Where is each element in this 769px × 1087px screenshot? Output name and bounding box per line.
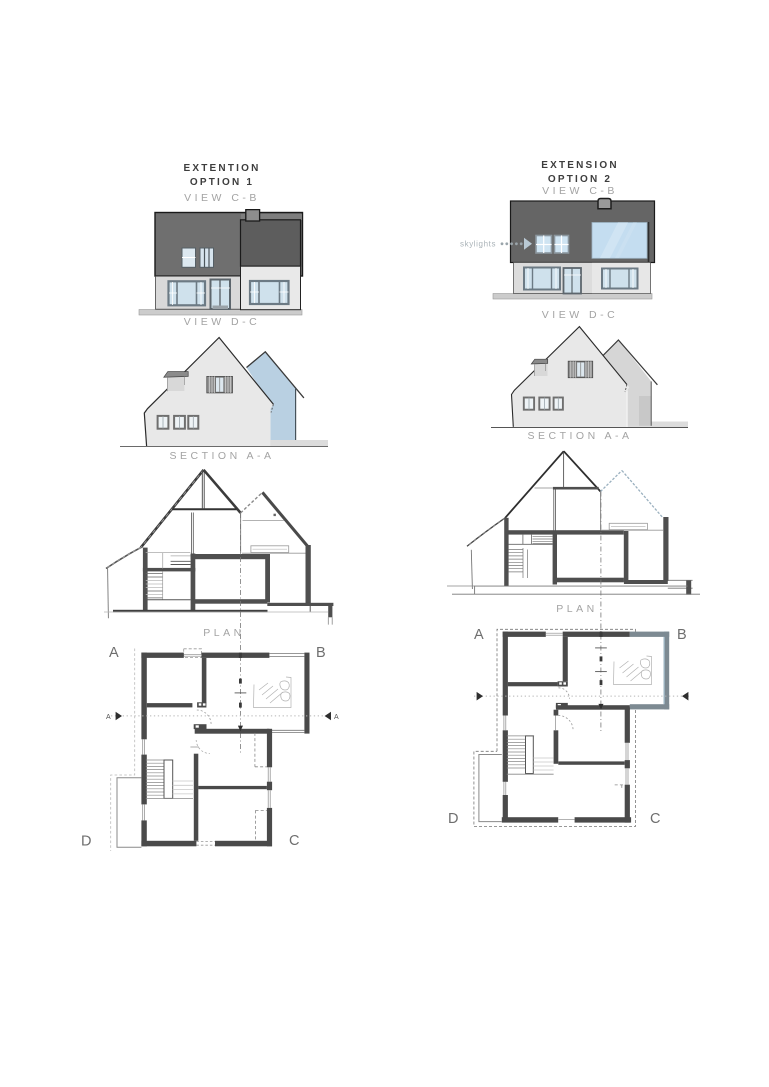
svg-text:B: B bbox=[677, 627, 687, 643]
svg-text:B: B bbox=[316, 645, 326, 661]
svg-text:A: A bbox=[474, 627, 484, 643]
svg-text:A: A bbox=[106, 714, 111, 721]
svg-text:D: D bbox=[81, 834, 91, 850]
svg-text:D: D bbox=[448, 811, 458, 827]
svg-text:C: C bbox=[650, 811, 660, 827]
svg-text:C: C bbox=[289, 833, 299, 849]
svg-text:A: A bbox=[334, 714, 339, 721]
svg-text:A: A bbox=[109, 645, 119, 661]
svg-text:skylights: skylights bbox=[460, 240, 496, 249]
